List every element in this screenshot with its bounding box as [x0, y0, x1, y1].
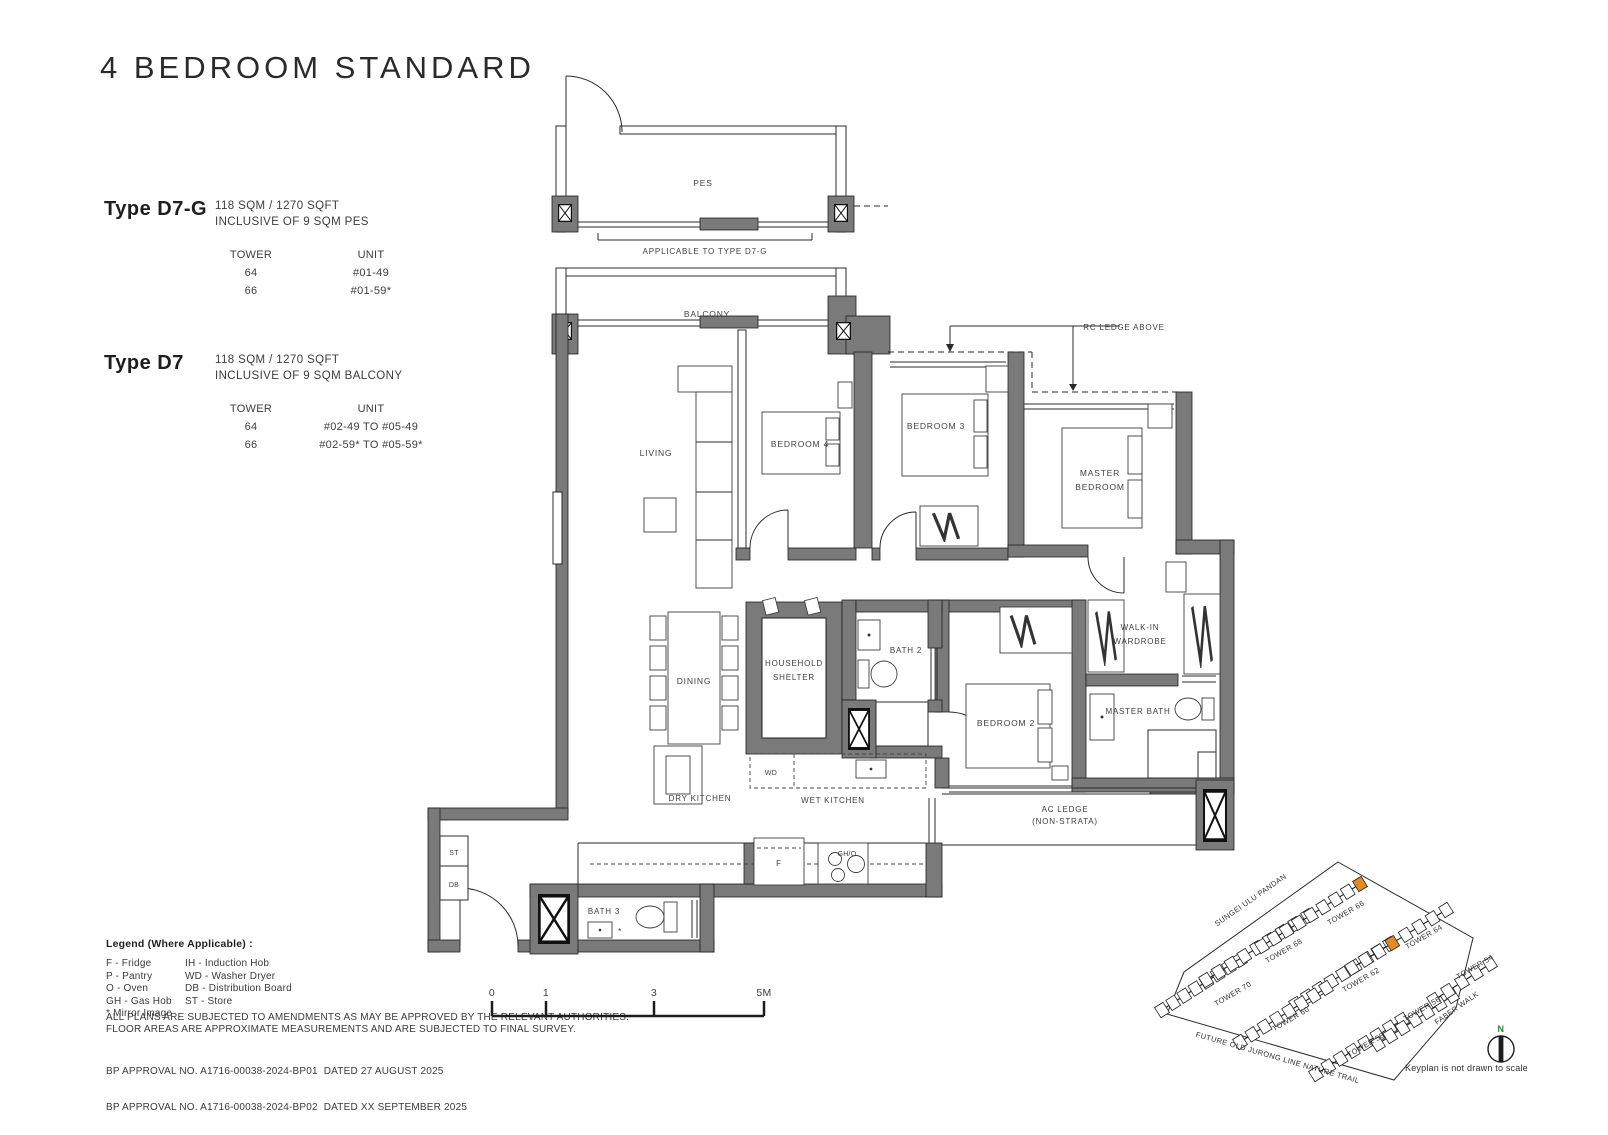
- walk-in-wardrobe-label: WALK-IN: [1121, 623, 1160, 632]
- street-sungei: SUNGEI ULU PANDAN: [1213, 872, 1288, 928]
- keyplan-unit: [1340, 884, 1355, 899]
- bedroom2-label: BEDROOM 2: [977, 718, 1035, 728]
- tower-70-label: TOWER 70: [1213, 980, 1253, 1008]
- pes-area: [552, 76, 888, 240]
- entry-riser: [539, 896, 568, 943]
- keyplan-unit: [1245, 1027, 1260, 1042]
- bedroom3-label: BEDROOM 3: [907, 421, 965, 431]
- keyplan-unit: [1166, 995, 1181, 1010]
- scale-bar: 0 1 3 5M: [489, 987, 772, 1016]
- master-bath-label: MASTER BATH: [1105, 707, 1170, 716]
- applicable-label: APPLICABLE TO TYPE D7-G: [643, 247, 768, 256]
- household-shelter-label-2: SHELTER: [773, 673, 815, 682]
- keyplan-unit: [1316, 900, 1331, 915]
- scale-5m: 5M: [756, 987, 771, 999]
- corridor-riser: [849, 709, 869, 748]
- entry-door-arc: [460, 888, 518, 946]
- keyplan-unit: [1177, 988, 1192, 1003]
- keyplan-unit: [1188, 981, 1203, 996]
- bedroom4-door: [750, 510, 788, 548]
- rc-ledge-label: RC LEDGE ABOVE: [1083, 323, 1164, 332]
- fridge-label: F: [776, 859, 782, 868]
- keyplan-unit: [1328, 892, 1343, 907]
- floor-plan-drawing: PES APPLICABLE TO TYPE D7-G BALCONY RC L…: [0, 0, 1608, 1135]
- bedroom3-door: [880, 512, 916, 548]
- balcony-label: BALCONY: [684, 309, 730, 319]
- applicable-bracket: [598, 233, 812, 240]
- db-label: DB: [449, 882, 459, 889]
- bath3-label: BATH 3: [588, 907, 620, 916]
- keyplan-note: Keyplan is not drawn to scale: [1405, 1063, 1528, 1073]
- keyplan-unit: [1257, 1019, 1272, 1034]
- ac-ledge-label: AC LEDGE: [1042, 805, 1089, 814]
- hob-label: GH/O: [837, 851, 856, 858]
- bedroom4-label: BEDROOM 4: [771, 439, 829, 449]
- pes-label: PES: [693, 178, 712, 188]
- bath2-label: BATH 2: [890, 646, 922, 655]
- north-compass: N: [1488, 1024, 1514, 1062]
- column-marker: [835, 205, 848, 222]
- keyplan-unit: [1371, 944, 1386, 959]
- keyplan-unit: [1155, 1002, 1170, 1017]
- household-shelter-label: HOUSEHOLD: [765, 659, 823, 668]
- column-marker: [837, 323, 851, 340]
- living-label: LIVING: [640, 448, 673, 458]
- dry-kitchen-label: DRY KITCHEN: [669, 794, 732, 803]
- keyplan-highlighted-unit: [1353, 876, 1368, 891]
- mirror-marker: *: [618, 926, 622, 936]
- dining-label: DINING: [677, 676, 712, 686]
- ac-shaft: [1204, 791, 1226, 840]
- keyplan-unit: [1439, 902, 1454, 917]
- master-bedroom-label: MASTER: [1080, 468, 1120, 478]
- keyplan: SUNGEI ULU PANDAN FABER WALK FUTURE OLD …: [1155, 862, 1528, 1085]
- north-label: N: [1498, 1024, 1505, 1034]
- scale-0: 0: [489, 987, 495, 999]
- washer-dryer-label: WD: [765, 770, 777, 777]
- master-bedroom-label-2: BEDROOM: [1075, 482, 1125, 492]
- ac-ledge-label-2: (NON-STRATA): [1032, 817, 1098, 826]
- scale-3: 3: [651, 987, 657, 999]
- keyplan-units: [1155, 876, 1498, 1081]
- store-label: ST: [449, 850, 459, 857]
- column-marker: [559, 205, 572, 222]
- walk-in-wardrobe-label-2: WARDROBE: [1113, 637, 1166, 646]
- master-bedroom-door: [1088, 557, 1124, 593]
- pes-gate-arc: [566, 76, 622, 132]
- wet-kitchen-label: WET KITCHEN: [801, 796, 865, 805]
- scale-1: 1: [543, 987, 549, 999]
